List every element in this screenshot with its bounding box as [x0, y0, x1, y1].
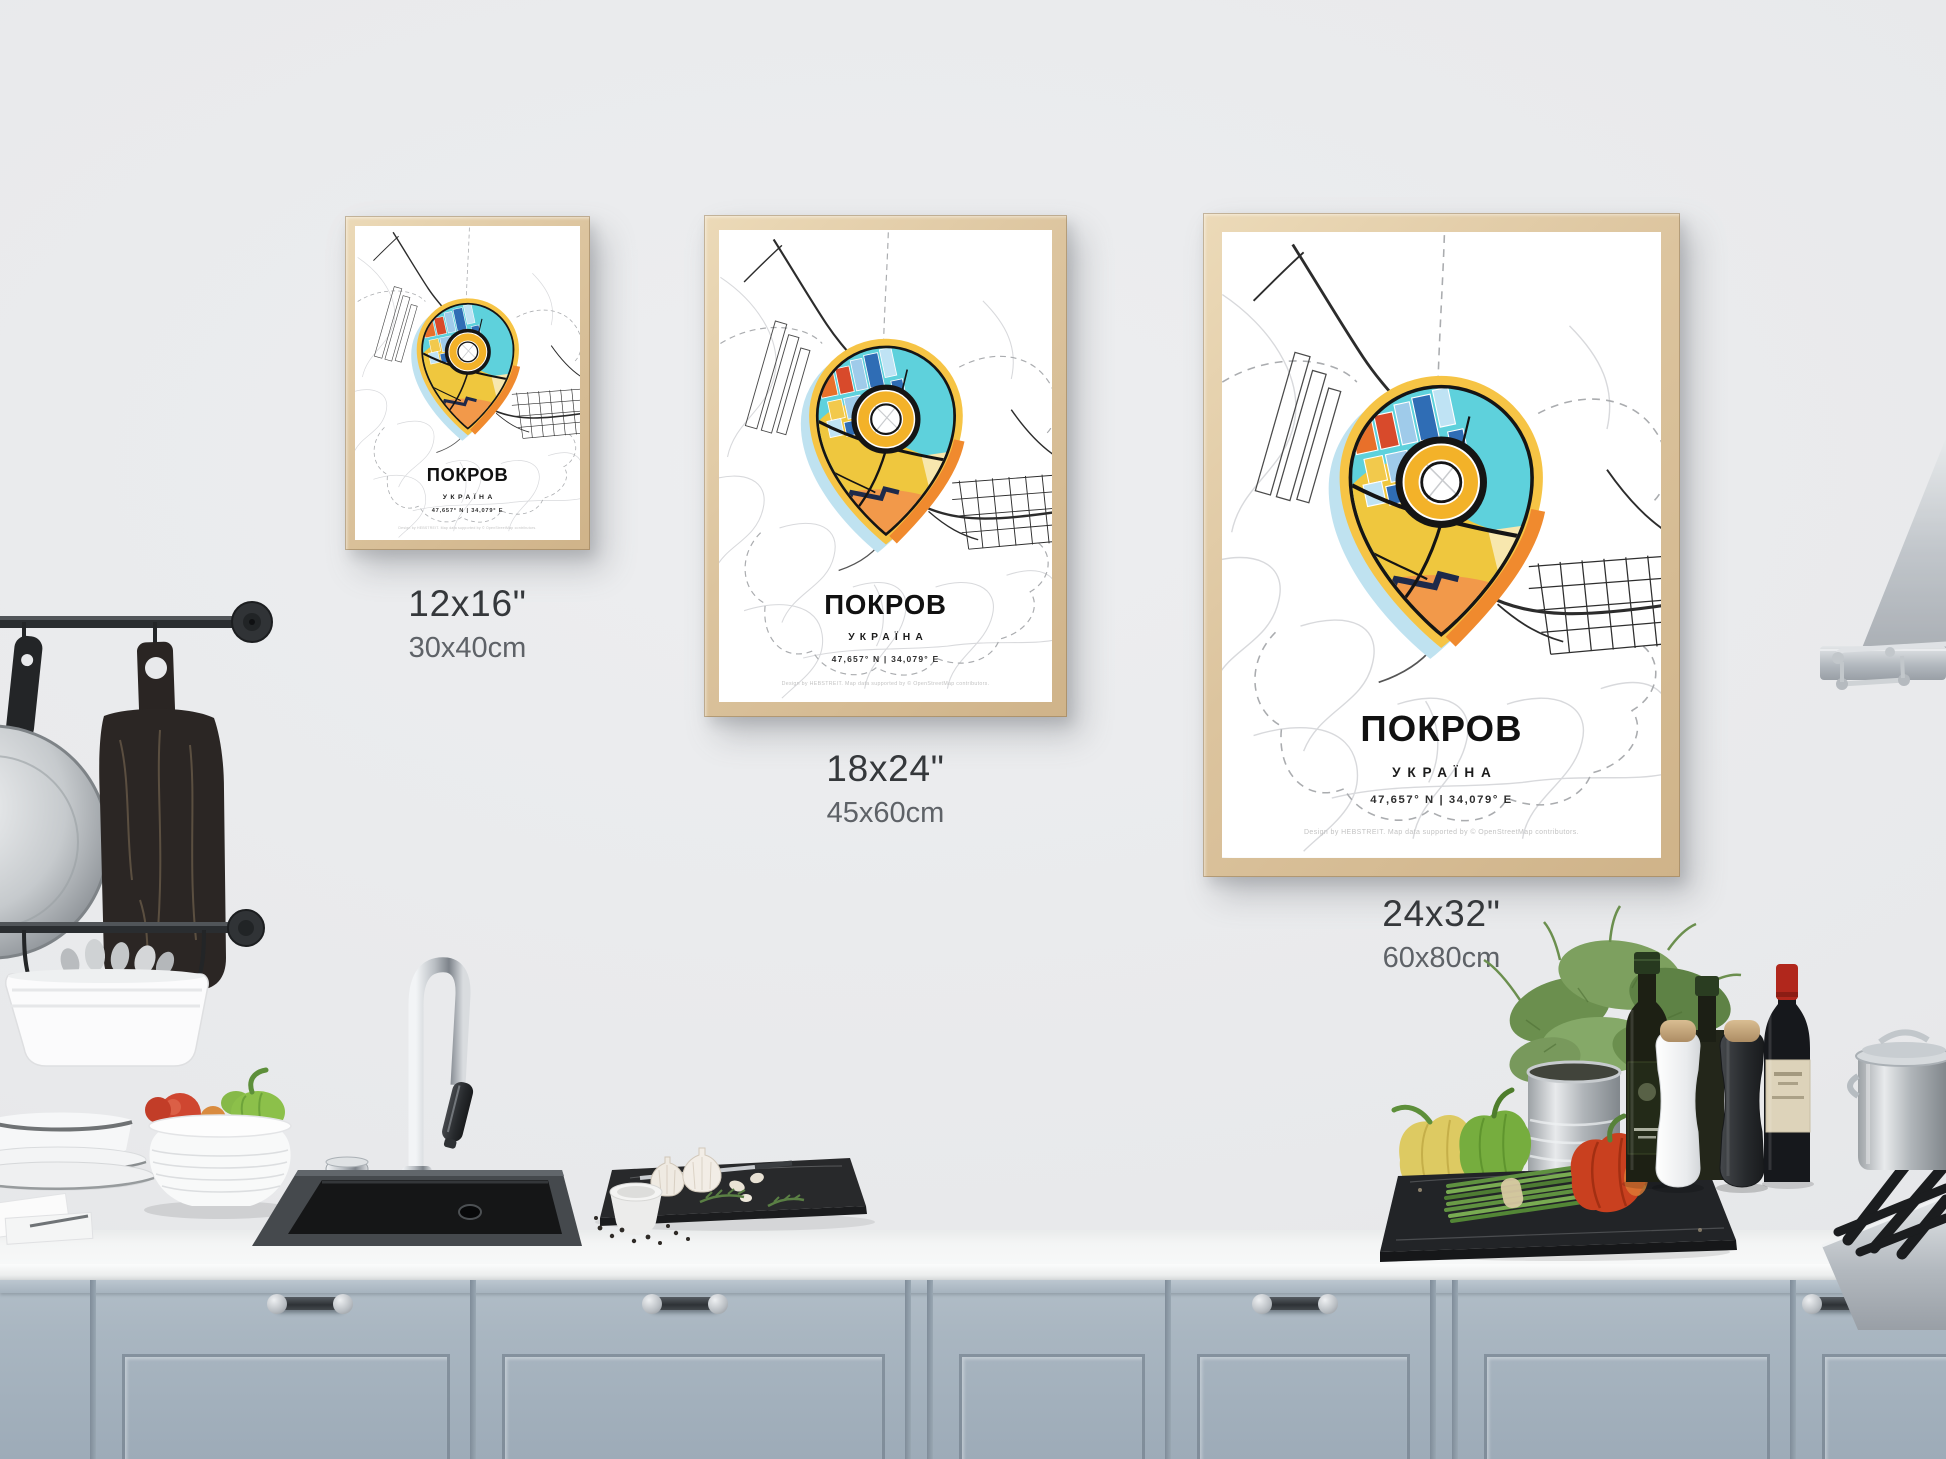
poster-coordinates: 47,657° N | 34,079° E — [355, 508, 581, 514]
poster-subtitle: УКРАЇНА — [719, 632, 1053, 643]
poster-frame-18x24: ПОКРОВ УКРАЇНА 47,657° N | 34,079° E Des… — [704, 215, 1067, 717]
size-cm: 30x40cm — [345, 632, 590, 665]
size-caption-large: 24x32" 60x80cm — [1203, 893, 1680, 975]
cabinet-top-rail — [0, 1280, 1946, 1293]
poster-frame-12x16: ПОКРОВ УКРАЇНА 47,657° N | 34,079° E Des… — [345, 216, 590, 550]
cabinet-door-panel — [959, 1354, 1145, 1459]
poster-title: ПОКРОВ — [355, 466, 581, 484]
yellow-bell-pepper — [1394, 1107, 1477, 1199]
poster-title: ПОКРОВ — [1222, 711, 1661, 748]
cabinet-door-panel — [502, 1354, 885, 1459]
cabinet-seam — [1790, 1280, 1796, 1459]
red-bell-pepper — [1571, 1116, 1649, 1212]
wall-rail-upper — [0, 602, 272, 656]
green-bell-pepper-counter — [1458, 1090, 1531, 1194]
hanging-pan-lid — [0, 635, 108, 958]
cabinet-seam — [1430, 1280, 1436, 1459]
drawer-handle — [267, 1293, 353, 1317]
sink-drain — [459, 1205, 481, 1219]
poster-paper: ПОКРОВ УКРАЇНА 47,657° N | 34,079° E Des… — [719, 230, 1053, 703]
poster-frame-24x32: ПОКРОВ УКРАЇНА 47,657° N | 34,079° E Des… — [1203, 213, 1680, 877]
chives-bundle — [1446, 1158, 1648, 1221]
kitchen-mockup-scene: ПОКРОВ УКРАЇНА 47,657° N | 34,079° E Des… — [0, 0, 1946, 1459]
cabinet-seam — [905, 1280, 911, 1459]
tomato — [159, 1093, 201, 1135]
pot-lid-handle — [1880, 1032, 1928, 1042]
poster-credit: Design by HEBSTREIT. Map data supported … — [719, 681, 1053, 687]
oil-bottle-back — [1690, 976, 1724, 1180]
size-inches: 18x24" — [704, 748, 1067, 790]
s-hook — [200, 930, 204, 974]
fruit-bowl — [144, 1070, 296, 1219]
pot-handle — [1850, 1076, 1858, 1096]
drawer-handle — [1802, 1293, 1888, 1317]
salt-grinder — [1652, 1020, 1704, 1193]
poster-credit: Design by HEBSTREIT. Map data supported … — [1222, 829, 1661, 836]
hanging-cutting-board — [99, 641, 226, 992]
size-inches: 12x16" — [345, 583, 590, 625]
cabinet-seam — [927, 1280, 933, 1459]
s-hook — [24, 930, 28, 974]
faucet — [396, 965, 475, 1185]
poster-subtitle: УКРАЇНА — [1222, 765, 1661, 780]
countertop-edge — [0, 1264, 1946, 1280]
poster-subtitle: УКРАЇНА — [355, 494, 581, 501]
cabinet-row — [0, 1280, 1946, 1459]
cabinet-door-panel — [1822, 1354, 1946, 1459]
soap-dish — [326, 1157, 368, 1176]
poster-coordinates: 47,657° N | 34,079° E — [719, 654, 1053, 664]
cabinet-door-panel — [1484, 1354, 1770, 1459]
cabinet-seam — [1165, 1280, 1171, 1459]
orange-tomato — [200, 1106, 226, 1132]
size-cm: 45x60cm — [704, 797, 1067, 830]
cabinet-seam — [470, 1280, 476, 1459]
mortar-bowl — [610, 1183, 662, 1235]
drawer-handle — [642, 1293, 728, 1317]
wall-rail-lower — [0, 910, 264, 974]
olive-oil-bottle — [1622, 952, 1674, 1189]
size-caption-small: 12x16" 30x40cm — [345, 583, 590, 665]
wine-bottle — [1762, 964, 1814, 1189]
size-inches: 24x32" — [1203, 893, 1680, 935]
cutlery — [58, 938, 178, 979]
size-cm: 60x80cm — [1203, 942, 1680, 975]
tomato — [145, 1097, 171, 1123]
cabinet-door-panel — [1197, 1354, 1410, 1459]
green-pepper-small — [221, 1091, 251, 1115]
range-hood — [1820, 438, 1946, 690]
poster-paper: ПОКРОВ УКРАЇНА 47,657° N | 34,079° E Des… — [355, 226, 581, 541]
cabinet-seam — [90, 1280, 96, 1459]
cabinet-door-panel — [122, 1354, 450, 1459]
size-caption-medium: 18x24" 45x60cm — [704, 748, 1067, 830]
garlic-bulbs — [651, 1148, 765, 1202]
poster-title: ПОКРОВ — [719, 591, 1053, 619]
poster-paper: ПОКРОВ УКРАЇНА 47,657° N | 34,079° E Des… — [1222, 232, 1661, 858]
green-bell-pepper — [231, 1091, 285, 1133]
poster-credit: Design by HEBSTREIT. Map data supported … — [355, 526, 581, 530]
hood-rail — [1836, 644, 1946, 658]
city-map-art — [1222, 232, 1661, 858]
utensil-bin — [6, 938, 208, 1066]
drawer-handle — [1252, 1293, 1338, 1317]
poster-coordinates: 47,657° N | 34,079° E — [1222, 794, 1661, 806]
plate-stack — [0, 1113, 154, 1191]
cabinet-seam — [1452, 1280, 1458, 1459]
knife — [640, 1167, 755, 1178]
tin-can — [1526, 1062, 1622, 1190]
countertop-surface — [0, 1230, 1946, 1264]
stock-pot — [1850, 1032, 1946, 1170]
pepper-grinder — [1716, 1020, 1768, 1193]
herb-sprigs — [700, 1189, 804, 1206]
